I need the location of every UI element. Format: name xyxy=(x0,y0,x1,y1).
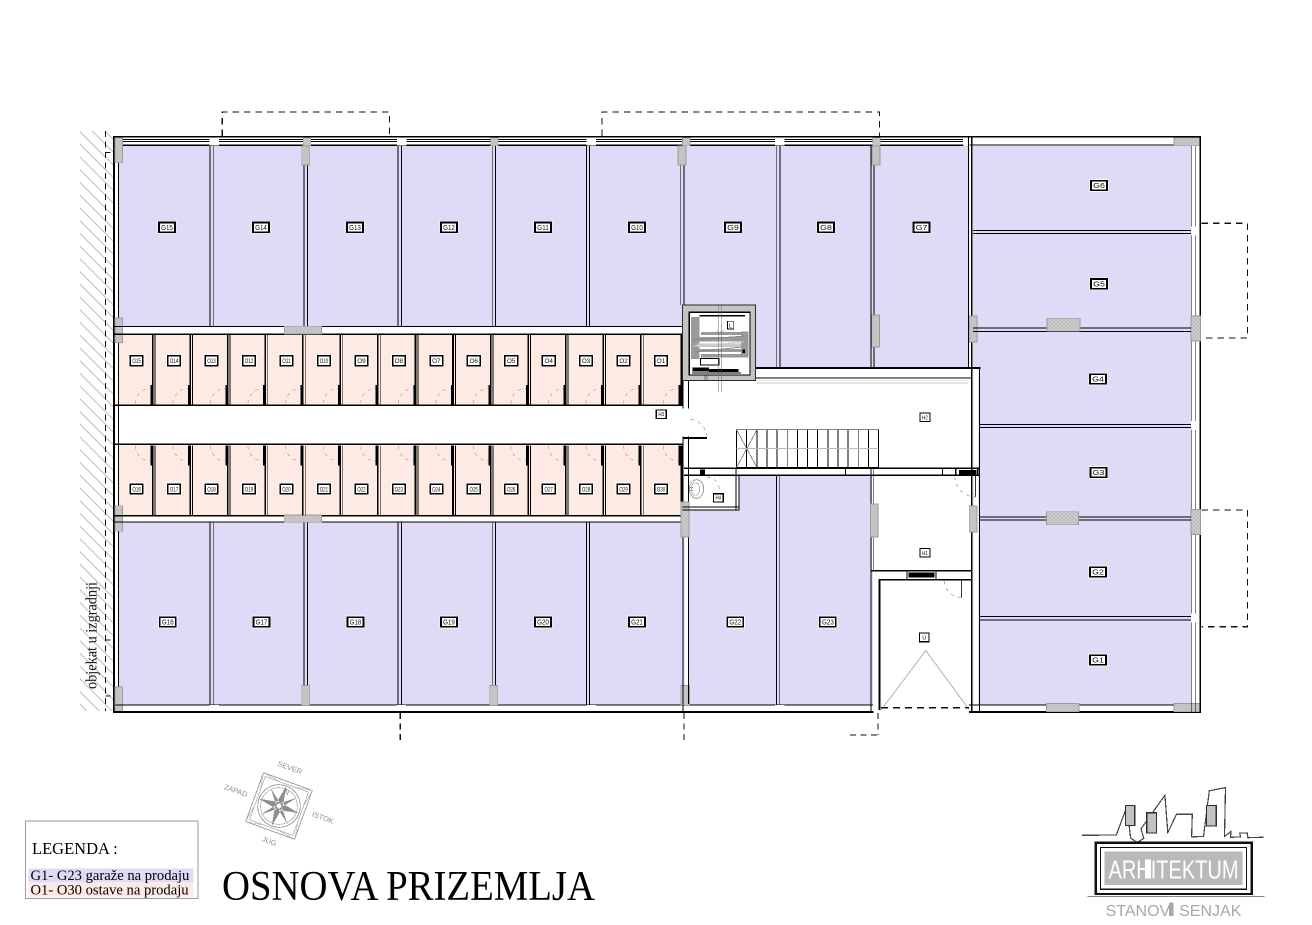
svg-text:OSNOVA PRIZEMLJA: OSNOVA PRIZEMLJA xyxy=(222,863,595,910)
svg-text:G12: G12 xyxy=(443,225,455,232)
svg-text:G1- G23 garaže na prodaju: G1- G23 garaže na prodaju xyxy=(31,868,191,884)
svg-text:G23: G23 xyxy=(822,620,834,627)
svg-text:O21: O21 xyxy=(320,486,329,493)
svg-text:O22: O22 xyxy=(357,486,366,493)
svg-text:G2: G2 xyxy=(1092,569,1104,576)
svg-text:G13: G13 xyxy=(349,225,361,232)
svg-text:G3: G3 xyxy=(1093,470,1105,477)
svg-text:O15: O15 xyxy=(132,358,141,365)
svg-text:O20: O20 xyxy=(282,486,291,493)
svg-text:O11: O11 xyxy=(282,358,291,365)
svg-text:ARHITEKTUM: ARHITEKTUM xyxy=(1109,857,1239,885)
svg-text:G6: G6 xyxy=(1093,183,1105,190)
svg-text:G15: G15 xyxy=(161,225,173,232)
svg-text:G18: G18 xyxy=(350,620,362,627)
svg-text:H2: H2 xyxy=(922,415,928,421)
svg-text:O28: O28 xyxy=(582,486,591,493)
svg-text:O26: O26 xyxy=(507,486,516,493)
svg-text:G17: G17 xyxy=(256,620,268,627)
svg-text:LEGENDA :: LEGENDA : xyxy=(32,839,118,858)
svg-text:G20: G20 xyxy=(537,620,549,627)
svg-text:G11: G11 xyxy=(537,225,549,232)
svg-text:O1: O1 xyxy=(657,358,666,365)
svg-text:4.25: 4.25 xyxy=(716,329,725,334)
svg-text:O18: O18 xyxy=(207,486,216,493)
svg-text:O1- O30 ostave na prodaju: O1- O30 ostave na prodaju xyxy=(31,883,190,899)
svg-text:O25: O25 xyxy=(470,486,479,493)
svg-text:G19: G19 xyxy=(443,620,455,627)
svg-text:U: U xyxy=(922,636,926,642)
svg-text:G21: G21 xyxy=(631,620,643,627)
svg-text:G10: G10 xyxy=(631,225,643,232)
svg-text:G4: G4 xyxy=(1092,376,1104,383)
svg-text:O27: O27 xyxy=(545,486,554,493)
svg-text:O7: O7 xyxy=(432,358,441,365)
svg-text:G8: G8 xyxy=(820,225,832,232)
svg-text:H1: H1 xyxy=(922,551,928,557)
svg-text:O17: O17 xyxy=(170,486,179,493)
svg-text:O3: O3 xyxy=(582,358,591,365)
svg-text:O12: O12 xyxy=(245,358,254,365)
svg-text:O4: O4 xyxy=(545,358,554,365)
svg-text:objekat u izgradnji: objekat u izgradnji xyxy=(84,581,101,689)
svg-text:O2: O2 xyxy=(619,358,628,365)
svg-text:O29: O29 xyxy=(619,486,628,493)
svg-text:H4: H4 xyxy=(716,496,722,502)
svg-text:G16: G16 xyxy=(162,620,174,627)
svg-text:O23: O23 xyxy=(395,486,404,493)
svg-text:O13: O13 xyxy=(207,358,216,365)
svg-text:O10: O10 xyxy=(320,358,329,365)
svg-text:STANOVI SENJAK: STANOVI SENJAK xyxy=(1106,903,1242,920)
svg-text:O6: O6 xyxy=(470,358,479,365)
svg-text:O24: O24 xyxy=(432,486,441,493)
svg-text:O30: O30 xyxy=(657,486,666,493)
svg-text:O14: O14 xyxy=(170,358,179,365)
svg-text:G1: G1 xyxy=(1092,657,1104,664)
svg-text:G14: G14 xyxy=(255,225,267,232)
svg-text:H3: H3 xyxy=(658,412,664,418)
svg-text:O19: O19 xyxy=(245,486,254,493)
svg-text:O16: O16 xyxy=(132,486,141,493)
svg-text:G9: G9 xyxy=(727,225,739,232)
svg-text:O9: O9 xyxy=(357,358,366,365)
svg-text:L: L xyxy=(729,324,732,330)
svg-text:O8: O8 xyxy=(395,358,404,365)
svg-text:G22: G22 xyxy=(729,620,741,627)
svg-text:O5: O5 xyxy=(507,358,516,365)
svg-text:G7: G7 xyxy=(916,225,928,232)
svg-text:G5: G5 xyxy=(1093,281,1105,288)
